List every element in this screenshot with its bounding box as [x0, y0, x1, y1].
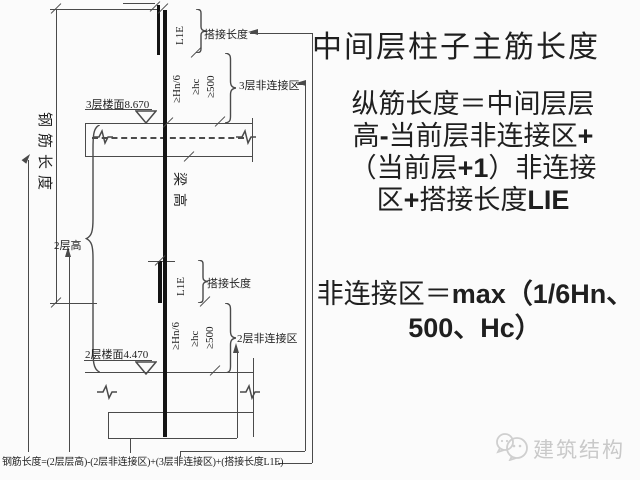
- arrowhead-icon: [22, 152, 33, 164]
- formula-line: 高-当前层非连接区+: [310, 120, 636, 152]
- lap-bar-mid: [158, 261, 162, 303]
- break-symbol-icon: [97, 384, 117, 400]
- brand-name: 建筑结构: [533, 434, 625, 464]
- formula-line: 500、Hc）: [312, 311, 638, 345]
- leader-zone2-h: [108, 438, 237, 439]
- leader-lap-top: [250, 33, 312, 34]
- slide-column-rebar-length: 钢筋长度 梁高 2层高 3层楼面8.670 2层楼面4.470 搭接长度 3层非…: [0, 0, 640, 480]
- hc-mid: ≥hc: [189, 331, 201, 347]
- arrowhead-icon: [248, 29, 258, 35]
- zone2-label: 2层非连接区: [237, 330, 298, 346]
- formula-line: 非连接区＝max（1/6Hn、: [312, 277, 638, 311]
- column-main-rebar: [163, 10, 167, 437]
- lap-code-mid: L1E: [175, 277, 187, 296]
- lap-length-label-top: 搭接长度: [204, 26, 248, 42]
- longitudinal-formula-text: 纵筋长度＝中间层层 高-当前层非连接区+ （当前层+1）非连接 区+搭接长度LI…: [310, 88, 636, 216]
- leader-zone2-v2: [130, 438, 131, 453]
- lap-code-top: L1E: [174, 26, 186, 45]
- brace-zone3: [224, 53, 237, 123]
- leader-zone3-v: [305, 84, 306, 451]
- dim-tick: [210, 365, 221, 376]
- rebar-length-dim-line: [56, 9, 57, 303]
- brace-zone2: [224, 303, 237, 373]
- leader-zone2-v3: [237, 352, 238, 438]
- beam3-top-edge: [85, 123, 252, 124]
- floor2-level-label: 2层楼面4.470: [85, 346, 148, 362]
- bottom-formula: 钢筋长度=(2层层高)-(2层非连接区)+(3层非连接区)+(搭接长度L1E): [2, 453, 283, 468]
- story2-height-label: 2层高: [54, 237, 82, 253]
- v500-mid: ≥500: [204, 326, 216, 349]
- formula-line: 纵筋长度＝中间层层: [310, 88, 636, 120]
- formula-line: （当前层+1）非连接: [310, 152, 636, 184]
- hc-top: ≥hc: [190, 79, 202, 95]
- rebar-length-label: 钢筋长度: [35, 112, 56, 196]
- break-symbol-icon: [240, 384, 260, 400]
- leader-zone2-v1: [108, 413, 109, 439]
- dim-line-top: [50, 9, 158, 10]
- leader-rebar-length: [28, 160, 29, 452]
- level-mark-icon: [135, 110, 157, 124]
- dim-line-top-aux: [123, 3, 155, 4]
- leader-zone3-h: [180, 451, 305, 452]
- beam2-bottom-edge: [108, 412, 253, 413]
- beam3-bottom-edge: [85, 156, 252, 157]
- beam3-centerline: [92, 137, 244, 139]
- lap-length-label-mid: 搭接长度: [207, 275, 251, 291]
- brace-story2-height: [85, 125, 101, 372]
- lap-boundary-line: [148, 261, 175, 262]
- page-title: 中间层柱子主筋长度: [312, 22, 600, 66]
- leader-story-height: [69, 256, 70, 452]
- zone3-label: 3层非连接区: [239, 77, 300, 93]
- formula-line: 区+搭接长度LIE: [310, 184, 636, 216]
- beam-height-label: 梁高: [170, 172, 190, 214]
- hn6-mid: ≥Hn/6: [170, 322, 182, 350]
- hn6-top: ≥Hn/6: [171, 75, 183, 103]
- nonconnect-formula-text: 非连接区＝max（1/6Hn、 500、Hc）: [312, 277, 638, 345]
- v500-top: ≥500: [205, 75, 217, 98]
- brand-bubbles-icon: [494, 431, 530, 461]
- level-mark-icon: [135, 361, 157, 375]
- break-symbol-icon: [236, 129, 256, 145]
- floor3-level-label: 3层楼面8.670: [86, 96, 149, 112]
